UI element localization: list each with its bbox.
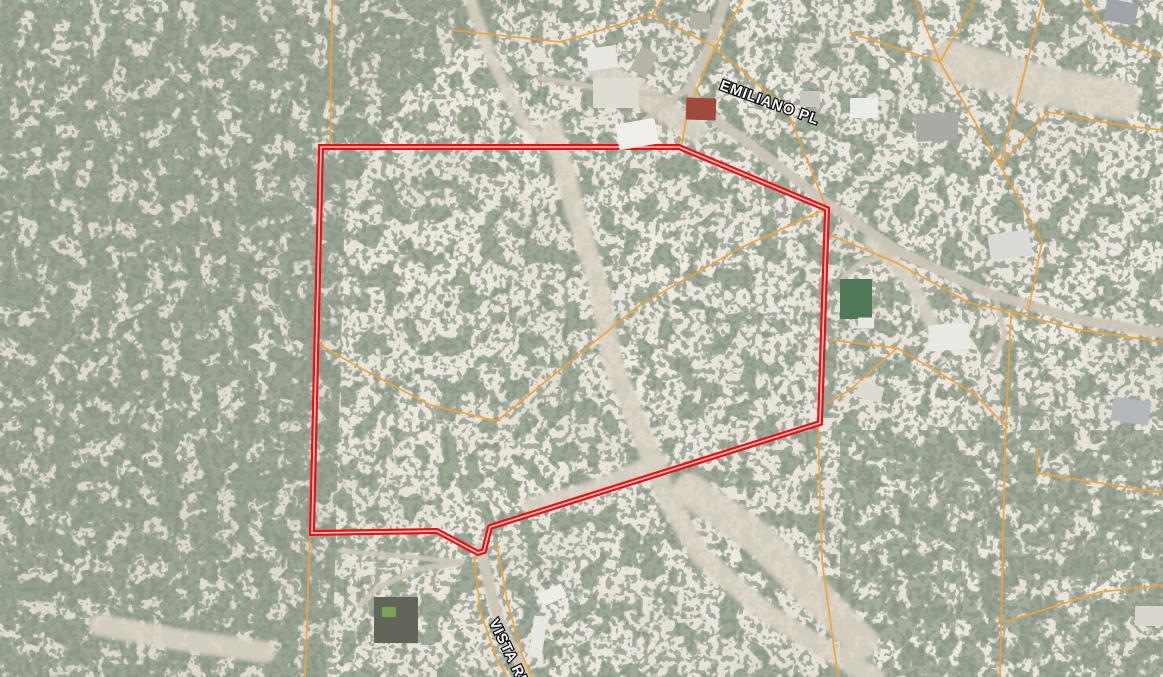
building [1135,606,1163,626]
shrub-layer [0,0,1163,677]
building [382,607,396,617]
building [686,97,717,120]
building [690,13,710,29]
building [800,91,820,107]
building [593,78,639,108]
building [928,323,970,352]
building [586,45,619,71]
building [850,98,878,118]
aerial-map[interactable]: EMILIANO PLVISTA RE [0,0,1163,677]
building [840,279,872,319]
building [374,597,418,643]
building [858,318,874,329]
aerial-map-svg: EMILIANO PLVISTA RE [0,0,1163,677]
building [916,112,959,141]
